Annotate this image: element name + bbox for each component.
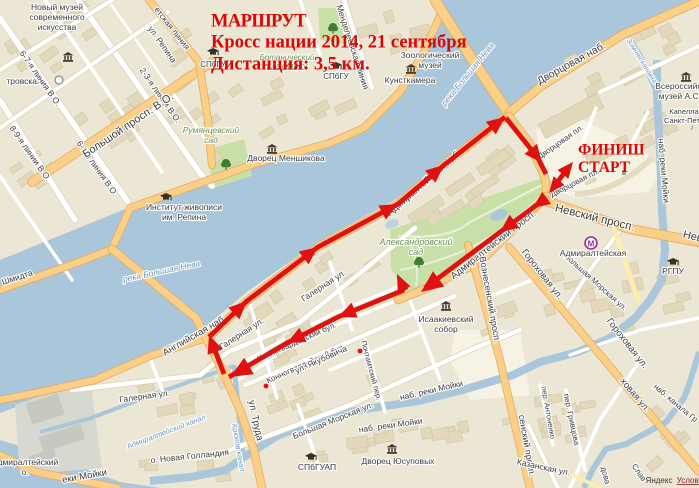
svg-text:РГПУ: РГПУ (662, 266, 684, 276)
svg-text:Кунсткамера: Кунсткамера (385, 75, 436, 85)
svg-text:Дворец Юсуповых: Дворец Юсуповых (362, 456, 436, 466)
svg-text:сад: сад (204, 135, 218, 145)
svg-text:Адмиралтейская: Адмиралтейская (560, 248, 627, 258)
svg-text:Санкт-Пете: Санкт-Пете (664, 116, 699, 125)
svg-text:Исаакиевский: Исаакиевский (419, 314, 474, 324)
svg-text:им. Репина: им. Репина (162, 212, 206, 222)
svg-text:Александровский: Александровский (379, 237, 453, 247)
svg-text:Капелла: Капелла (669, 107, 699, 116)
svg-text:современного: современного (29, 12, 85, 22)
svg-text:Всероссийский: Всероссийский (655, 81, 699, 91)
svg-text:Кросс нации 2014, 21 сентября: Кросс нации 2014, 21 сентября (211, 33, 467, 53)
svg-text:о.: о. (21, 467, 28, 477)
svg-text:Дворец Меншикова: Дворец Меншикова (247, 153, 325, 163)
svg-text:СПбГУАП: СПбГУАП (298, 462, 336, 472)
svg-text:музей: музей (418, 60, 442, 70)
svg-text:музей А.С.Пу: музей А.С.Пу (659, 91, 699, 101)
svg-text:СТАРТ: СТАРТ (578, 159, 631, 176)
svg-text:ФИНИШ: ФИНИШ (578, 142, 645, 159)
svg-text:Дистанция: 3,5 км.: Дистанция: 3,5 км. (211, 55, 370, 75)
svg-text:Румянцевский: Румянцевский (183, 125, 240, 135)
svg-text:Яндекс: Яндекс (646, 476, 673, 485)
svg-text:искусства: искусства (38, 22, 77, 32)
svg-text:Адмиралтейский: Адмиралтейский (0, 457, 58, 467)
svg-text:Институт живописи: Институт живописи (146, 202, 222, 212)
svg-text:МАРШРУТ: МАРШРУТ (211, 12, 307, 32)
svg-text:Новый музей: Новый музей (31, 2, 83, 12)
svg-text:Услови: Услови (677, 476, 699, 485)
svg-text:сад: сад (409, 247, 424, 257)
svg-text:собор: собор (434, 324, 458, 334)
